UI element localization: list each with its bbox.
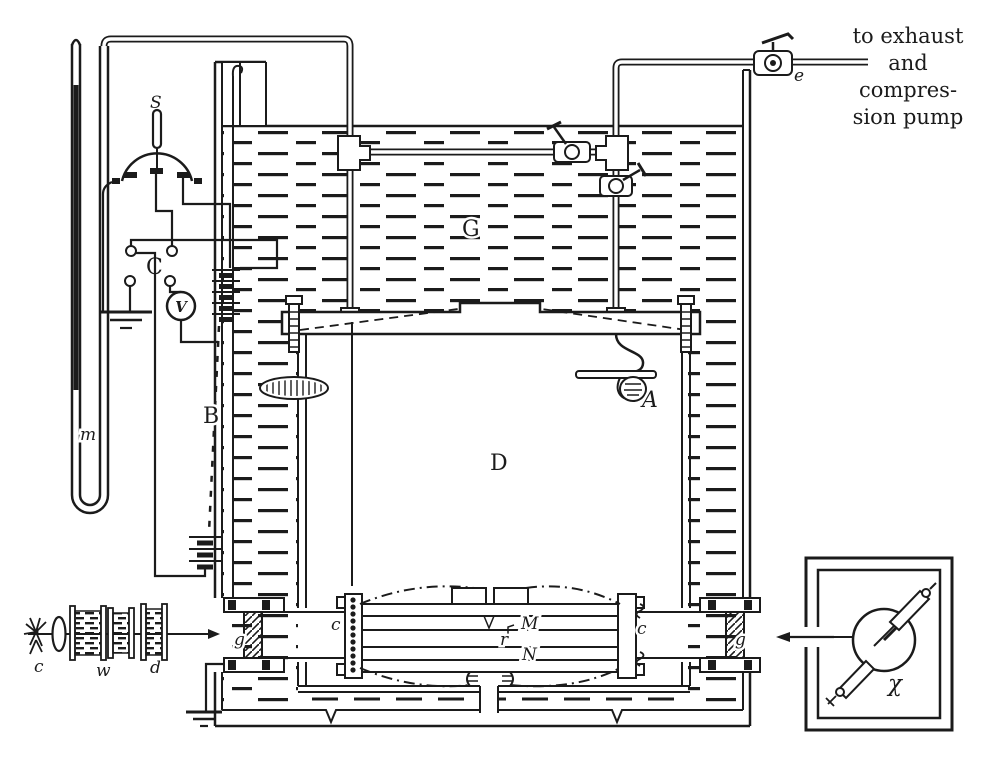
label-post-right: c xyxy=(637,619,647,639)
optical-train xyxy=(24,604,220,660)
end-cap-right xyxy=(618,594,636,678)
label-commutator: C xyxy=(146,255,163,280)
label-xray-tube: χ xyxy=(886,671,904,697)
water-cell xyxy=(70,606,134,660)
exhaust-text-line4: sion pump xyxy=(853,105,964,129)
exhaust-text-line3: compres- xyxy=(859,78,957,102)
mercury-column xyxy=(74,85,79,390)
label-upper-plate: M xyxy=(520,614,539,634)
label-lower-plate: N xyxy=(521,645,538,665)
label-window-left: g xyxy=(234,630,245,650)
upper-plate xyxy=(362,616,618,630)
label-exhaust-valve: e xyxy=(794,66,804,86)
plate-assembly xyxy=(337,586,644,713)
exhaust-text-line2: and xyxy=(888,51,928,75)
label-filter-cell: d xyxy=(150,658,161,678)
label-pinhole: r xyxy=(500,630,509,650)
label-post-left: c xyxy=(331,615,341,635)
tank-ground xyxy=(186,664,224,726)
label-oil-bath: G xyxy=(462,217,480,242)
condenser-lens xyxy=(53,617,66,651)
exhaust-text-line1: to exhaust xyxy=(853,24,964,48)
apparatus-diagram: m S C V B G D A M N r c c g g e c w d χ … xyxy=(0,0,1000,773)
chimney-right xyxy=(494,588,528,604)
lid-bolt-left xyxy=(286,296,302,352)
arc-lamp xyxy=(24,618,46,654)
xray-arrowhead xyxy=(776,632,790,642)
contact-beads xyxy=(350,597,355,672)
apparatus-figure: m S C V B G D A M N r c c g g e c w d χ … xyxy=(0,0,1000,773)
xray-box xyxy=(776,558,952,730)
lid-bolt-right xyxy=(678,296,694,352)
exhaust-valve xyxy=(754,34,793,75)
label-arc-lamp: c xyxy=(34,657,44,677)
label-manometer: m xyxy=(80,425,96,445)
chimney-left xyxy=(452,588,486,604)
label-window-right: g xyxy=(735,630,746,650)
label-switch: S xyxy=(150,93,162,113)
exhaust-annotation: to exhaust and compres- sion pump xyxy=(853,24,964,129)
label-water-cell: w xyxy=(96,661,111,681)
label-chamber: D xyxy=(490,451,508,476)
lower-plate xyxy=(362,647,618,660)
label-atomizer: A xyxy=(640,388,658,413)
switch xyxy=(112,110,202,184)
cork-bushing xyxy=(260,377,328,399)
label-voltmeter: V xyxy=(175,298,188,316)
filter-cell xyxy=(141,604,167,660)
label-battery: B xyxy=(203,404,219,429)
